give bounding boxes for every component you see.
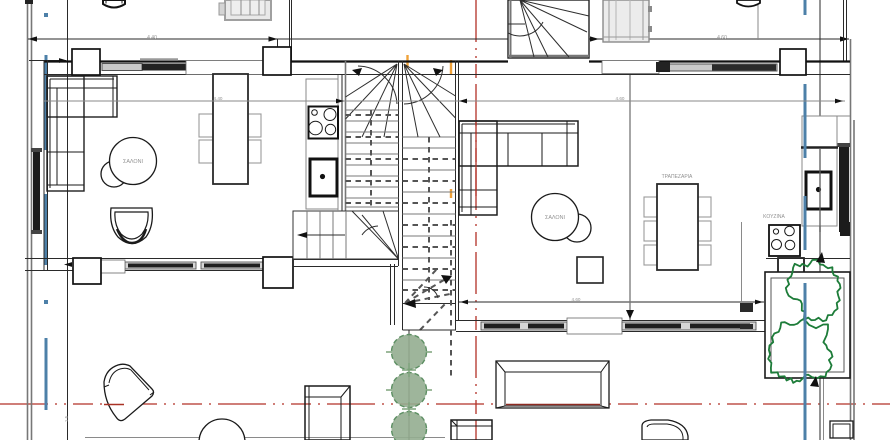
svg-text:ΚΟΥΖΙΝΑ: ΚΟΥΖΙΝΑ (763, 214, 785, 220)
svg-text:4.40: 4.40 (214, 96, 223, 101)
svg-text:ΤΡΑΠΕΖΑΡΙΑ: ΤΡΑΠΕΖΑΡΙΑ (662, 174, 693, 180)
svg-text:ΣΑΛΟΝΙ: ΣΑΛΟΝΙ (123, 159, 143, 165)
svg-text:4.60: 4.60 (616, 96, 625, 101)
svg-text:4.60: 4.60 (717, 35, 727, 41)
svg-text:1.5: 1.5 (64, 415, 69, 422)
svg-text:4.60: 4.60 (572, 297, 581, 302)
svg-text:ΣΑΛΟΝΙ: ΣΑΛΟΝΙ (545, 215, 565, 221)
svg-text:4.40: 4.40 (147, 35, 157, 41)
